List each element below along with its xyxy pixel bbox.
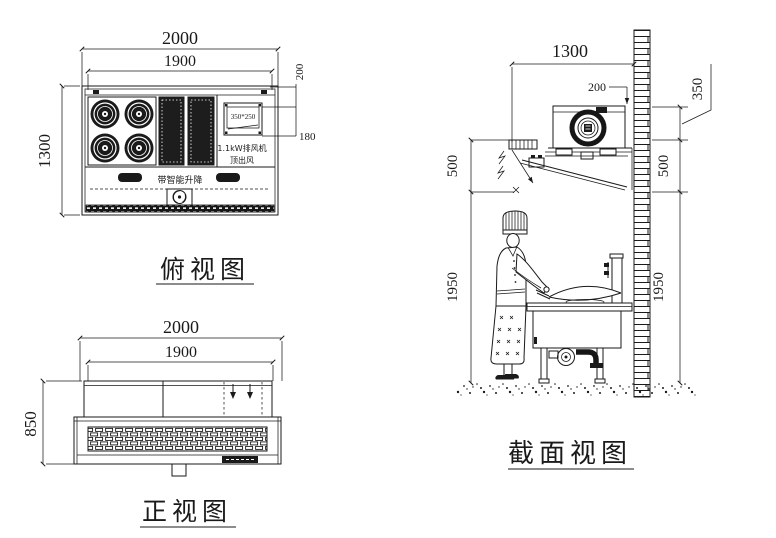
break-mark [498,151,505,179]
chef-hat [503,211,527,234]
dim-height: 850 [21,411,40,437]
gas-pipe [549,349,603,369]
motor-mount [596,107,607,113]
backsplash-column [612,257,622,303]
range-body [533,311,621,348]
dim-depth: 1300 [35,134,54,168]
ground-stipple [456,383,696,396]
top-view-title: 俯视图 [160,255,250,284]
fan-icon [91,100,120,129]
front-view: 2000 1900 850 正视图 [21,317,282,527]
smart-lift-label: 带智能升降 [157,174,202,186]
perforated-grille [88,427,267,451]
top-view: 350*250 1.1kW排风机 顶出风 带智能升降 2000 1900 [35,28,316,284]
chef-shoe [505,374,519,379]
air-outlet-direction-label: 顶出风 [230,155,254,165]
chef-head [507,234,519,248]
dim-inner-width: 1900 [165,344,197,361]
dim-overall-width: 2000 [163,317,199,337]
hood-body-front [74,381,281,476]
corner-block [261,90,267,94]
dim-hood-width: 1300 [552,41,588,61]
front-view-title: 正视图 [142,497,232,526]
chef-hand [544,287,549,292]
corner-block [93,90,99,94]
brick-wall [634,30,650,397]
chef-figure [491,211,549,380]
dim-inner-width: 1900 [164,53,196,70]
hood-front-edge [498,140,544,193]
lift-handle [118,173,142,182]
cad-drawing-page: 350*250 1.1kW排风机 顶出风 带智能升降 2000 1900 [0,0,776,538]
dim-edge-offset: 200 [294,63,306,80]
fan-icon [125,100,154,129]
bottom-tab [172,464,186,476]
hood-baffle [522,160,627,187]
dim-working-height-right: 1950 [651,272,667,302]
fan-icon [125,134,154,163]
outlet-size-label: 350*250 [231,113,256,121]
fan-power-label: 1.1kW排风机 [217,143,266,153]
hood-section [498,106,632,193]
dim-outlet-offset: 180 [299,131,316,143]
dim-top-clearance: 350 [690,78,706,101]
lift-handle [216,173,240,182]
air-outlet-box: 350*250 [224,103,262,135]
fan-icon [91,134,120,163]
dim-hood-height-right: 500 [656,155,672,178]
dim-duct-offset: 200 [588,80,606,94]
section-view-title: 截面视图 [508,439,632,469]
dim-working-height-left: 1950 [445,272,461,302]
chef-apron [491,306,526,364]
range-top [527,303,632,311]
dim-overall-width: 2000 [162,28,198,48]
range-leg [541,348,547,379]
wok-range [527,254,632,383]
woven-strip [86,205,274,212]
dim-hood-height-left: 500 [445,155,461,178]
blower-icon [572,112,604,144]
engineering-drawing: 350*250 1.1kW排风机 顶出风 带智能升降 2000 1900 [0,0,776,538]
section-view: 1300 200 350 500 1950 500 1950 截面视图 [445,30,711,469]
